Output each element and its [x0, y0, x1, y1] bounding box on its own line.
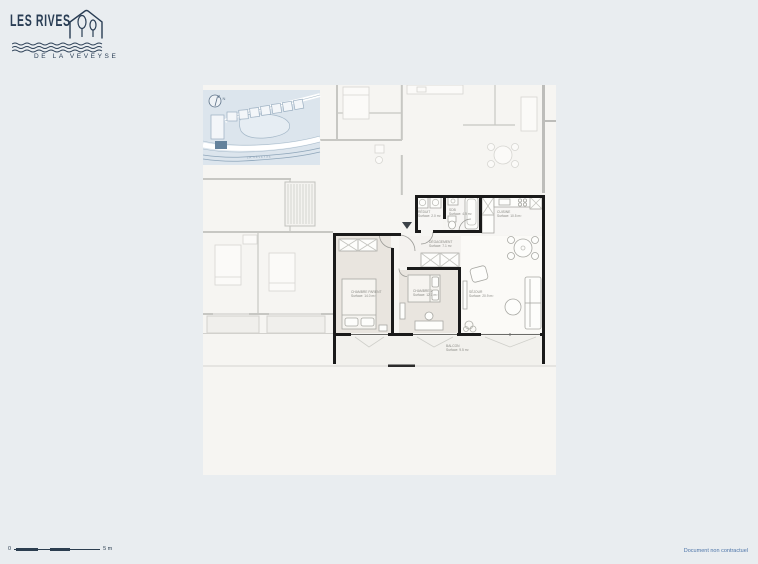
- logo-subtitle: DE LA VEVEYSE: [34, 53, 118, 60]
- scale-end-label: 5 m: [103, 546, 112, 552]
- scale-segment: [16, 548, 38, 551]
- label-sejour-area: Surface: 20.9 m²: [469, 294, 494, 298]
- north-label: N: [223, 96, 226, 101]
- floorplan-sheet: LA VEVEYSE N: [203, 85, 556, 475]
- scale-bar-line: [14, 547, 100, 552]
- label-sdb-area: Surface: 4.9 m²: [449, 212, 472, 216]
- house-trees-icon: [66, 8, 106, 42]
- label-degagement-area: Surface: 7.1 m²: [429, 244, 452, 248]
- brand-logo: LES RIVES DE LA VEVEYSE: [10, 8, 110, 42]
- scale-start-label: 0: [8, 546, 11, 552]
- entrance-arrow-icon: [402, 222, 412, 229]
- highlighted-building: [215, 141, 227, 149]
- site-plan-map: LA VEVEYSE N: [203, 90, 320, 165]
- waves-icon: [12, 42, 104, 53]
- disclaimer-note: Document non contractuel: [684, 548, 748, 554]
- floorplan-drawing: LA VEVEYSE N: [203, 85, 556, 475]
- balcony-edge-mark: [388, 365, 415, 368]
- label-reduit-area: Surface: 2.0 m²: [418, 214, 441, 218]
- logo-title: LES RIVES: [10, 11, 71, 31]
- label-chambre1-area: Surface: 12.1 m²: [413, 293, 438, 297]
- logo-row: LES RIVES: [10, 8, 110, 42]
- label-cuisine-area: Surface: 10.5 m²: [497, 214, 522, 218]
- scale-bar: 0 5 m: [8, 543, 112, 555]
- label-chambre-parent-area: Surface: 14.0 m²: [351, 294, 376, 298]
- subject-apartment: RÉDUIT Surface: 2.0 m² SDB Surface: 4.9 …: [203, 195, 556, 367]
- stairwell: [285, 182, 315, 226]
- scale-segment: [50, 548, 70, 551]
- label-balcon-area: Surface: 9.5 m²: [446, 348, 469, 352]
